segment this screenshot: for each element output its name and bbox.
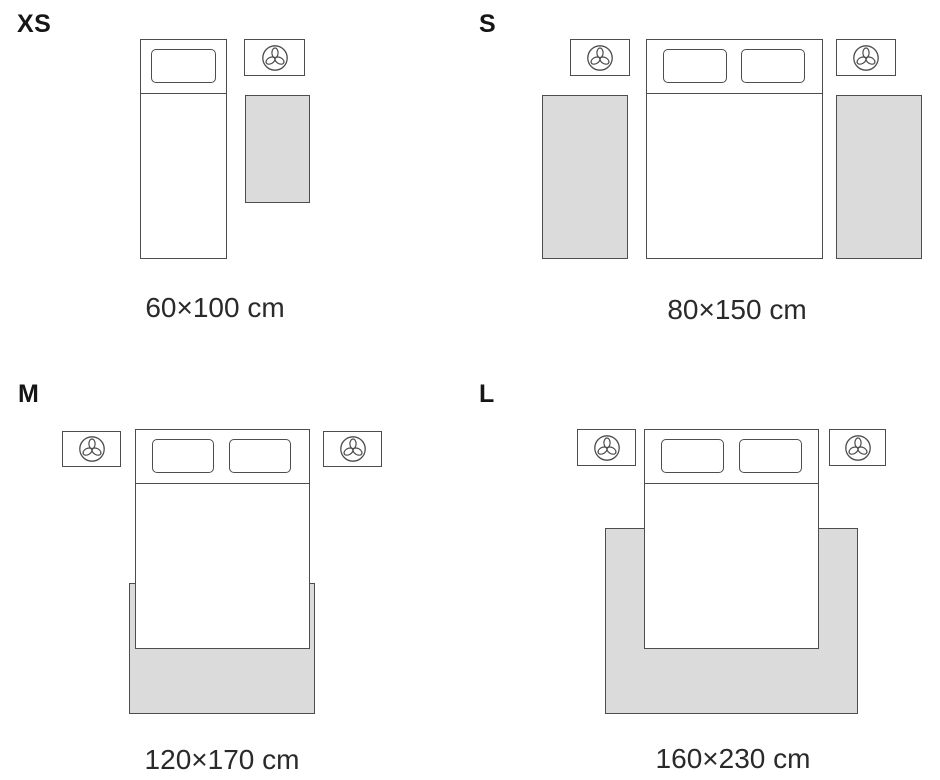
pillow — [151, 49, 216, 83]
double-bed-l — [644, 429, 819, 649]
rug-s-right — [836, 95, 922, 259]
pillow — [229, 439, 291, 473]
plant-top-view-icon — [843, 433, 873, 463]
size-caption-xs: 60×100 cm — [110, 294, 320, 322]
plant-top-view-icon — [77, 434, 107, 464]
size-caption-m: 120×170 cm — [117, 746, 327, 774]
size-caption-s: 80×150 cm — [632, 296, 842, 324]
size-label-m: M — [18, 382, 39, 407]
plant-top-view-icon — [338, 434, 368, 464]
pillow — [663, 49, 727, 83]
size-caption-l: 160×230 cm — [628, 745, 838, 773]
double-bed-s — [646, 39, 823, 259]
bed-headboard — [136, 430, 309, 484]
size-label-s: S — [479, 12, 496, 37]
pillow — [152, 439, 214, 473]
nightstand — [836, 39, 896, 76]
single-bed-xs — [140, 39, 227, 259]
bed-headboard — [647, 40, 822, 94]
bed-headboard — [141, 40, 226, 94]
nightstand — [577, 429, 636, 466]
plant-top-view-icon — [585, 43, 615, 73]
nightstand — [244, 39, 305, 76]
plant-top-view-icon — [851, 43, 881, 73]
plant-top-view-icon — [592, 433, 622, 463]
nightstand — [570, 39, 630, 76]
plant-top-view-icon — [260, 43, 290, 73]
nightstand — [829, 429, 886, 466]
bed-headboard — [645, 430, 818, 484]
nightstand — [62, 431, 121, 467]
rug-size-guide-diagram: XS 60×100 cm S — [0, 0, 940, 780]
pillow — [661, 439, 724, 473]
pillow — [739, 439, 802, 473]
size-label-l: L — [479, 382, 495, 407]
double-bed-m — [135, 429, 310, 649]
rug-s-left — [542, 95, 628, 259]
size-label-xs: XS — [17, 12, 51, 37]
nightstand — [323, 431, 382, 467]
rug-xs — [245, 95, 310, 203]
pillow — [741, 49, 805, 83]
